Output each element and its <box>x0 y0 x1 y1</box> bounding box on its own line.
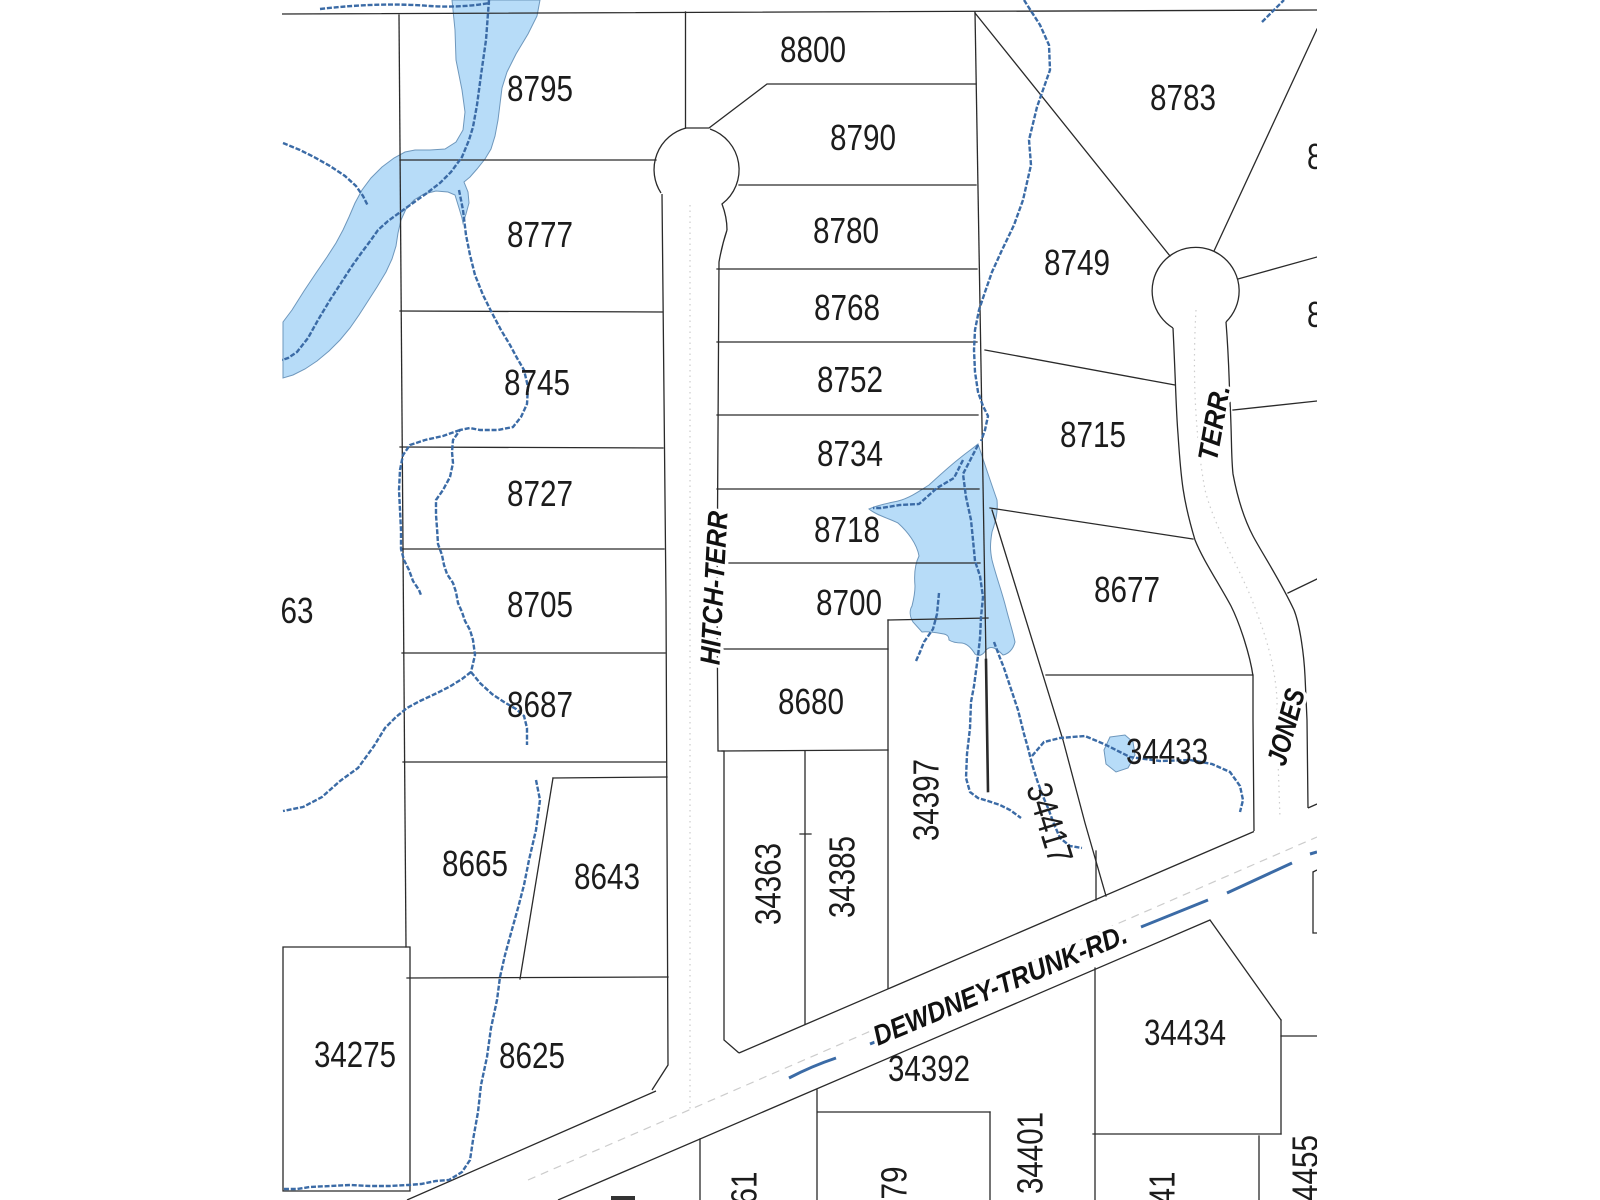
svg-text:34385: 34385 <box>822 836 863 918</box>
svg-text:8625: 8625 <box>499 1035 565 1076</box>
svg-text:8734: 8734 <box>817 433 883 474</box>
svg-text:8643: 8643 <box>574 856 640 897</box>
svg-text:8705: 8705 <box>507 584 573 625</box>
svg-text:61: 61 <box>724 1172 765 1200</box>
svg-text:8665: 8665 <box>442 843 508 884</box>
svg-text:8745: 8745 <box>504 362 570 403</box>
svg-text:34363: 34363 <box>748 843 789 925</box>
svg-text:79: 79 <box>874 1167 915 1200</box>
svg-text:34392: 34392 <box>888 1048 970 1089</box>
svg-text:34397: 34397 <box>906 759 947 841</box>
svg-text:8718: 8718 <box>814 509 880 550</box>
svg-text:8800: 8800 <box>780 29 846 70</box>
svg-text:8687: 8687 <box>507 684 573 725</box>
svg-text:63: 63 <box>281 590 314 631</box>
svg-text:8790: 8790 <box>830 117 896 158</box>
svg-text:41: 41 <box>1142 1172 1183 1200</box>
svg-text:8777: 8777 <box>507 214 573 255</box>
svg-text:8727: 8727 <box>507 473 573 514</box>
svg-text:8700: 8700 <box>816 582 882 623</box>
svg-text:8780: 8780 <box>813 210 879 251</box>
svg-text:8783: 8783 <box>1150 77 1216 118</box>
svg-text:8749: 8749 <box>1044 242 1110 283</box>
svg-text:8768: 8768 <box>814 287 880 328</box>
svg-text:8715: 8715 <box>1060 414 1126 455</box>
svg-text:8680: 8680 <box>778 681 844 722</box>
svg-text:34275: 34275 <box>314 1034 396 1075</box>
svg-text:34434: 34434 <box>1144 1012 1226 1053</box>
svg-text:8752: 8752 <box>817 359 883 400</box>
svg-text:34433: 34433 <box>1126 731 1208 772</box>
svg-text:8677: 8677 <box>1094 569 1160 610</box>
svg-text:8795: 8795 <box>507 68 573 109</box>
svg-text:34401: 34401 <box>1010 1112 1051 1194</box>
